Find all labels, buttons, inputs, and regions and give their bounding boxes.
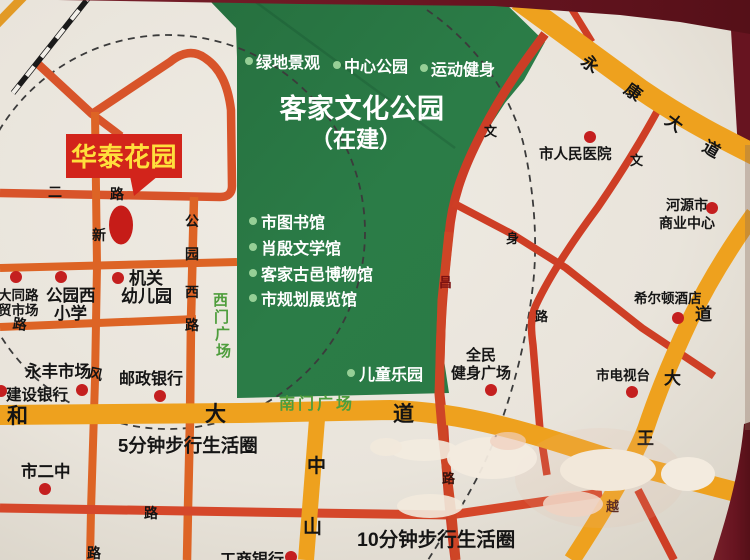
svg-text:中: 中 [307, 454, 326, 477]
svg-text:西: 西 [185, 284, 199, 300]
svg-text:西: 西 [213, 292, 228, 309]
svg-text:路: 路 [185, 317, 200, 333]
svg-text:儿童乐园: 儿童乐园 [358, 365, 423, 384]
svg-text:健身广场: 健身广场 [451, 364, 511, 382]
svg-text:道: 道 [393, 402, 414, 426]
svg-text:贸市场: 贸市场 [0, 302, 39, 318]
svg-text:广: 广 [215, 325, 230, 343]
svg-text:市电视台: 市电视台 [596, 367, 650, 383]
svg-text:路: 路 [144, 505, 159, 521]
svg-text:门: 门 [214, 308, 229, 326]
svg-text:路: 路 [442, 471, 456, 486]
svg-text:南门广场: 南门广场 [279, 394, 355, 413]
svg-text:全民: 全民 [465, 346, 496, 364]
svg-text:市人民医院: 市人民医院 [539, 145, 612, 163]
svg-text:大同路: 大同路 [0, 287, 39, 303]
svg-text:山: 山 [303, 516, 322, 538]
svg-text:小学: 小学 [54, 303, 87, 323]
svg-text:大: 大 [205, 403, 226, 426]
svg-text:邮政银行: 邮政银行 [119, 369, 183, 388]
svg-text:文: 文 [484, 124, 498, 139]
svg-text:路: 路 [87, 545, 102, 560]
svg-text:公: 公 [185, 213, 199, 229]
svg-text:客家古邑博物馆: 客家古邑博物馆 [261, 265, 373, 284]
svg-text:华泰花园: 华泰花园 [71, 142, 177, 172]
svg-text:新: 新 [92, 227, 106, 243]
svg-text:运动健身: 运动健身 [431, 60, 495, 79]
svg-text:工商银行: 工商银行 [220, 550, 284, 560]
svg-text:大: 大 [664, 368, 681, 388]
svg-text:市二中: 市二中 [21, 461, 71, 481]
svg-text:希尔顿酒店: 希尔顿酒店 [634, 290, 702, 306]
svg-text:场: 场 [216, 343, 231, 360]
svg-text:10分钟步行生活圈: 10分钟步行生活圈 [357, 528, 515, 551]
svg-text:建设银行: 建设银行 [6, 385, 69, 404]
svg-text:市规划展览馆: 市规划展览馆 [261, 290, 357, 309]
svg-text:机关: 机关 [129, 268, 163, 288]
svg-text:文: 文 [630, 153, 644, 168]
svg-text:身: 身 [506, 231, 519, 246]
svg-text:永丰市场: 永丰市场 [24, 361, 91, 381]
svg-text:道: 道 [695, 304, 712, 324]
svg-text:路: 路 [535, 309, 549, 324]
svg-text:商业中心: 商业中心 [659, 215, 715, 231]
svg-text:和: 和 [7, 405, 28, 428]
svg-text:二: 二 [48, 184, 62, 200]
svg-text:肖殷文学馆: 肖殷文学馆 [261, 239, 341, 258]
svg-text:公园西: 公园西 [46, 286, 96, 305]
svg-text:（在建）: （在建） [310, 126, 402, 152]
svg-text:绿地景观: 绿地景观 [256, 53, 320, 72]
svg-text:客家文化公园: 客家文化公园 [280, 93, 445, 124]
svg-text:路: 路 [110, 186, 125, 202]
svg-text:市图书馆: 市图书馆 [261, 213, 325, 232]
svg-text:中心公园: 中心公园 [344, 57, 408, 76]
svg-text:园: 园 [185, 246, 199, 262]
svg-text:5分钟步行生活圈: 5分钟步行生活圈 [118, 435, 258, 456]
svg-text:河源市: 河源市 [666, 197, 708, 213]
svg-text:昌: 昌 [439, 275, 452, 290]
svg-text:幼儿园: 幼儿园 [121, 286, 172, 306]
